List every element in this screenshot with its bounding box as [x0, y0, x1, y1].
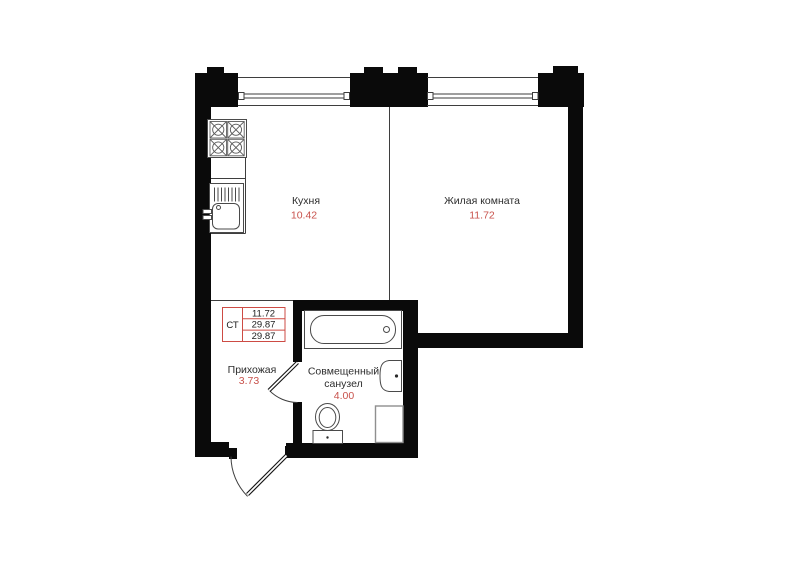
- living-room-label: Жилая комната: [444, 195, 520, 207]
- washbasin-icon: [380, 361, 402, 392]
- stamp-type-label: СТ: [226, 320, 239, 331]
- stamp-row-value: 11.72: [252, 308, 275, 319]
- wall-segment: [293, 402, 302, 444]
- wall-segment: [195, 442, 229, 457]
- wall-segment: [293, 300, 302, 362]
- wall-segment: [293, 300, 418, 311]
- stove-icon: [208, 120, 247, 158]
- floor-plan-drawing: СТ 11.72 29.87 29.87 Кухня 10.42 Жилая к…: [0, 0, 800, 566]
- bathroom-label-line1: Совмещенный: [308, 366, 379, 378]
- toilet-icon: [313, 404, 343, 444]
- stamp-row-value: 29.87: [252, 331, 276, 342]
- area-stamp-table: СТ 11.72 29.87 29.87: [223, 308, 286, 342]
- wall-segment: [568, 107, 583, 348]
- kitchen-label: Кухня: [292, 195, 320, 207]
- bathroom-door-swing-arc: [269, 390, 297, 402]
- entry-door: [231, 456, 287, 497]
- wall-segment: [553, 66, 578, 74]
- wall-segment: [350, 73, 428, 107]
- faucet-icon: [203, 210, 212, 214]
- hallway-area: 3.73: [239, 375, 260, 387]
- floor-plan: СТ 11.72 29.87 29.87 Кухня 10.42 Жилая к…: [0, 0, 800, 566]
- entry-door-swing-arc: [231, 457, 248, 497]
- door-jamb: [229, 448, 237, 459]
- kitchen-window: [238, 78, 350, 106]
- wall-segment: [538, 73, 584, 107]
- living-room-window: [427, 78, 538, 106]
- wall-segment: [398, 67, 417, 74]
- bathtub-icon: [305, 311, 402, 349]
- wall-segment: [195, 73, 238, 107]
- room-labels: Кухня 10.42 Жилая комната 11.72 Прихожая…: [228, 195, 520, 402]
- bathroom-area: 4.00: [334, 390, 355, 402]
- kitchen-sink-icon: [203, 184, 244, 233]
- living-room-area: 11.72: [469, 210, 495, 222]
- wall-segment: [364, 67, 383, 74]
- wall-segment: [207, 67, 224, 74]
- washing-machine-icon: [376, 406, 404, 443]
- kitchen-area: 10.42: [291, 210, 317, 222]
- wall-segment: [195, 107, 211, 457]
- faucet-icon: [203, 216, 212, 220]
- bathroom-label-line2: санузел: [324, 378, 362, 390]
- stamp-row-value: 29.87: [252, 320, 276, 331]
- wall-segment: [286, 443, 418, 458]
- wall-segment: [403, 333, 583, 348]
- wall-segment: [403, 311, 418, 458]
